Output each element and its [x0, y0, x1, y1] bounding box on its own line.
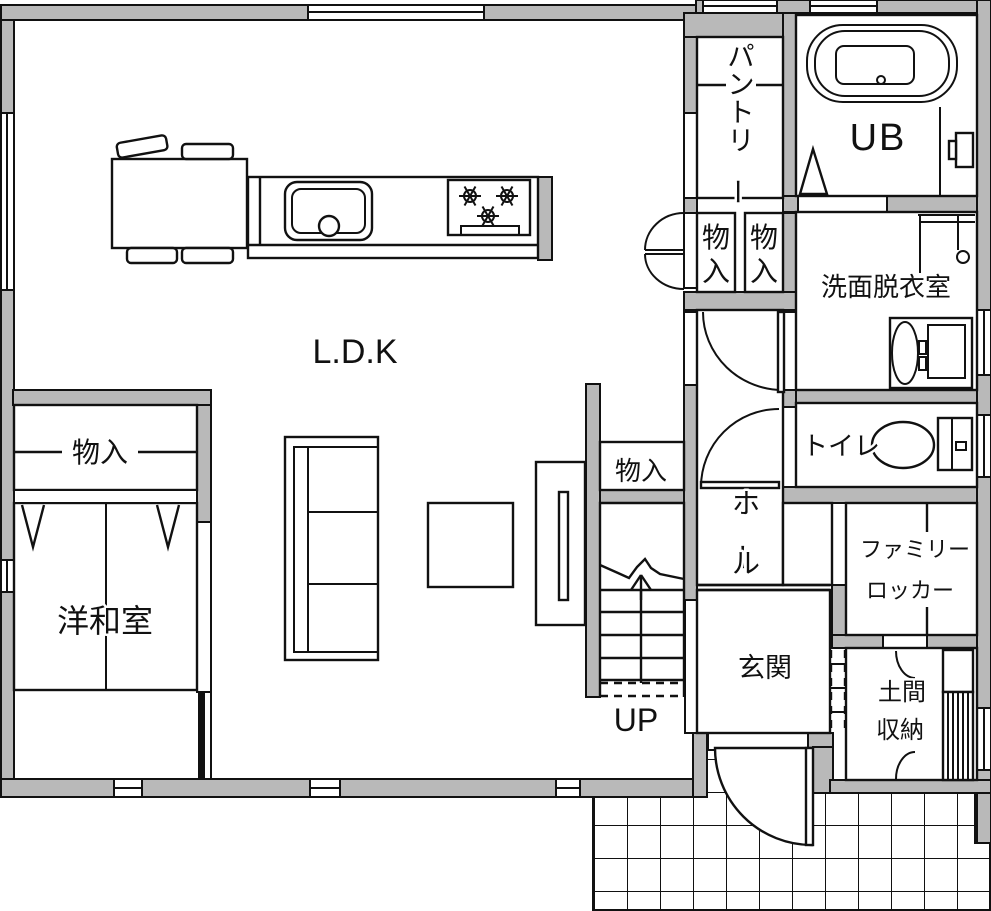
kitchen-sink-icon: [285, 182, 372, 240]
wall-stairs-storage-bottom: [600, 490, 684, 503]
window-icon: [977, 310, 991, 375]
label-storage-japanese: 物入: [72, 437, 128, 468]
opening-ldk-hall: [684, 312, 697, 385]
tv-icon: [559, 492, 568, 600]
window-icon: [810, 0, 877, 13]
label-doma-1: 土間: [878, 679, 926, 706]
wall-ub-west: [783, 13, 796, 196]
room-hall-east: [783, 503, 832, 585]
dining-chair: [127, 248, 177, 263]
wall-bottom: [1, 779, 697, 797]
floor-plan: L.D.K パントリー UB 洗面脱衣室 トイレ ホール 物入 物入 物入 物入…: [0, 0, 991, 911]
window-icon: [308, 5, 484, 20]
wall-stairs-west: [586, 384, 600, 697]
label-toilet: トイレ: [802, 431, 880, 461]
opening-ub-door: [798, 196, 887, 212]
wall-pantry-west2: [684, 198, 697, 213]
window-icon: [977, 708, 991, 770]
label-family-locker-2: ロッカー: [866, 578, 954, 603]
opening-closet-doors: [684, 213, 697, 288]
wall-doma-bottom: [830, 780, 991, 793]
window-icon: [114, 779, 142, 797]
opening-pantry: [684, 113, 697, 198]
wall-japanese-room-top: [13, 390, 211, 405]
label-storage-stairs: 物入: [615, 456, 667, 486]
label-ub: UB: [850, 117, 907, 159]
toilet-icon: [872, 418, 972, 470]
ub-wall-fixture-knob: [949, 141, 956, 159]
wall-kitchen-end: [538, 177, 552, 260]
label-doma-2: 収納: [876, 717, 924, 744]
room-family-locker: [846, 503, 977, 635]
wall-hall-west: [684, 385, 697, 600]
closet-sliding-track: [14, 490, 197, 503]
sliding-door-panel: [198, 692, 205, 780]
dining-chair: [182, 144, 233, 159]
opening-locker-doma: [883, 635, 927, 648]
window-icon: [703, 0, 777, 13]
room-ub: [796, 15, 977, 196]
label-washroom: 洗面脱衣室: [821, 272, 951, 302]
opening-japanese-room: [197, 522, 211, 692]
wall-pantry-top: [684, 13, 796, 37]
washroom-door-leaf: [778, 312, 784, 392]
window-icon: [977, 415, 991, 477]
label-family-locker-1: ファミリー: [860, 537, 970, 562]
wall-japanese-room-east: [197, 405, 211, 522]
ub-wall-fixture: [956, 133, 973, 167]
dining-table: [112, 159, 247, 248]
washing-machine-icon: [890, 318, 972, 388]
opening-toilet-door: [783, 407, 796, 487]
window-icon: [310, 779, 340, 797]
label-genkan: 玄関: [738, 653, 792, 683]
floor-plan-canvas: L.D.K パントリー UB 洗面脱衣室 トイレ ホール 物入 物入 物入 物入…: [0, 0, 991, 911]
window-icon: [1, 560, 14, 592]
opening-locker-entry: [832, 503, 846, 585]
wall-toilet-top: [783, 390, 977, 403]
wall-genkan-west: [693, 733, 707, 797]
wall-hall-top: [684, 292, 796, 310]
dining-chair: [182, 248, 233, 263]
label-ldk: L.D.K: [312, 333, 397, 371]
label-up: UP: [614, 702, 658, 738]
sofa-icon: [285, 437, 378, 660]
wall-washroom-west: [783, 213, 796, 292]
label-japanese-room: 洋和室: [57, 603, 153, 639]
doma-shelf-top: [943, 650, 973, 692]
window-icon: [556, 779, 580, 797]
wall-toilet-bottom: [783, 487, 977, 503]
entrance-door-leaf: [806, 748, 813, 845]
coffee-table: [428, 503, 513, 587]
wall-pantry-west: [684, 37, 697, 113]
stove-icon: [448, 180, 530, 235]
window-icon: [1, 113, 14, 290]
thin-wall-up-genkan: [685, 600, 697, 733]
